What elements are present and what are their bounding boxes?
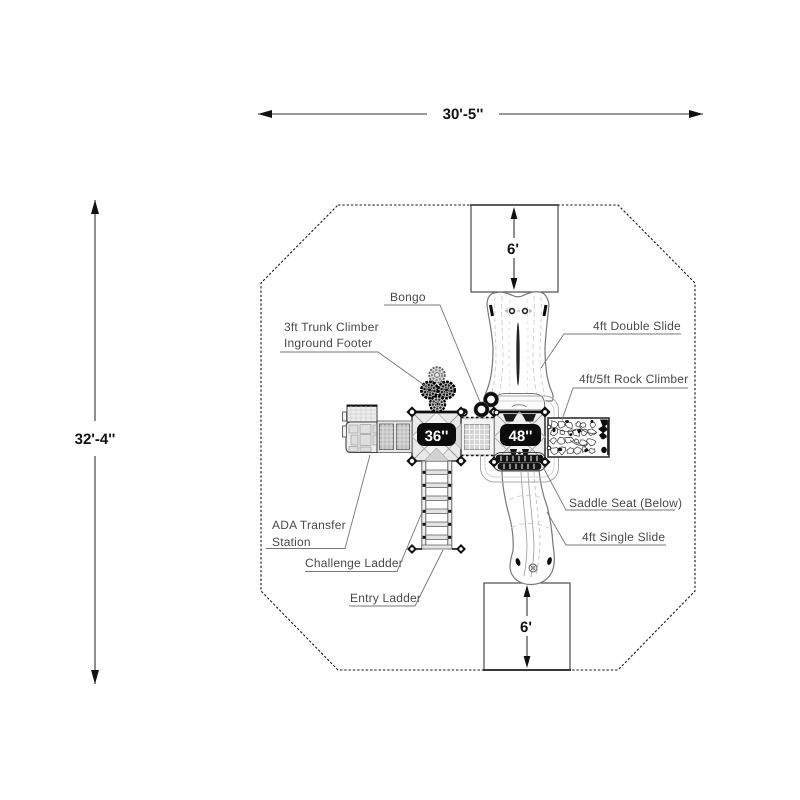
svg-text:6': 6' [507, 241, 519, 258]
svg-text:Saddle Seat (Below): Saddle Seat (Below) [569, 496, 682, 510]
svg-text:4ft Double Slide: 4ft Double Slide [593, 319, 681, 333]
svg-text:3ft Trunk Climber: 3ft Trunk Climber [284, 320, 379, 334]
svg-text:6': 6' [520, 619, 532, 636]
svg-text:Station: Station [272, 535, 311, 549]
svg-text:4ft/5ft Rock Climber: 4ft/5ft Rock Climber [579, 372, 688, 386]
svg-text:ADA Transfer: ADA Transfer [272, 518, 346, 532]
svg-text:32'-4'': 32'-4'' [75, 431, 116, 448]
svg-text:48'': 48'' [509, 428, 533, 445]
svg-text:Bongo: Bongo [390, 290, 426, 304]
svg-text:36'': 36'' [425, 428, 449, 445]
svg-text:30'-5'': 30'-5'' [443, 106, 484, 123]
svg-text:4ft Single Slide: 4ft Single Slide [582, 530, 665, 544]
svg-text:Challenge Ladder: Challenge Ladder [305, 556, 403, 570]
svg-text:Entry Ladder: Entry Ladder [350, 591, 421, 605]
svg-text:Inground Footer: Inground Footer [284, 336, 372, 350]
